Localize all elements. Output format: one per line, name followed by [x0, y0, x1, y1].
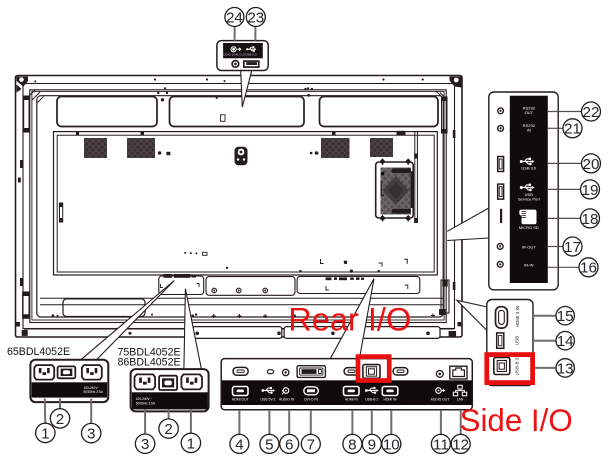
- svg-text:5: 5: [265, 436, 273, 453]
- svg-text:10: 10: [383, 436, 400, 453]
- svg-text:18: 18: [582, 211, 599, 228]
- svg-text:2: 2: [164, 421, 172, 438]
- svg-text:IN: IN: [527, 128, 531, 133]
- svg-text:HDMI IN: HDMI IN: [345, 397, 359, 401]
- svg-text:IR-IN: IR-IN: [524, 262, 533, 267]
- svg-text:4: 4: [235, 436, 243, 453]
- svg-text:AUDIO OUT: AUDIO OUT: [431, 397, 450, 401]
- svg-text:24: 24: [226, 9, 243, 26]
- svg-text:17: 17: [564, 239, 581, 256]
- svg-text:1: 1: [41, 425, 49, 442]
- svg-text:6: 6: [285, 436, 293, 453]
- svg-text:23: 23: [247, 9, 264, 26]
- svg-text:19: 19: [582, 182, 599, 199]
- svg-text:AUDIO IN: AUDIO IN: [279, 397, 295, 401]
- svg-text:USB-B 3: USB-B 3: [514, 357, 519, 375]
- svg-text:11: 11: [433, 436, 449, 453]
- svg-text:86BDL4052E: 86BDL4052E: [118, 356, 181, 368]
- svg-text:50/60Hz 2.5A: 50/60Hz 2.5A: [136, 401, 156, 405]
- svg-text:USB-B 2: USB-B 2: [365, 397, 378, 401]
- svg-text:2: 2: [56, 411, 64, 428]
- svg-text:9: 9: [368, 436, 376, 453]
- svg-text:USB 3.0: USB 3.0: [521, 166, 537, 171]
- svg-text:3: 3: [87, 426, 95, 443]
- svg-text:HDMI IN: HDMI IN: [384, 397, 398, 401]
- svg-text:1: 1: [187, 435, 195, 452]
- svg-text:MICRO SD: MICRO SD: [519, 225, 539, 230]
- svg-text:HDMI OUT: HDMI OUT: [232, 397, 249, 401]
- svg-text:USB: USB: [514, 336, 519, 345]
- svg-text:22: 22: [583, 104, 600, 121]
- svg-text:50/60Hz 2.5A: 50/60Hz 2.5A: [84, 390, 104, 394]
- svg-text:AUDIO LINE OUT: AUDIO LINE OUT: [221, 52, 245, 56]
- svg-text:LAN: LAN: [457, 398, 464, 402]
- svg-text:8: 8: [348, 436, 356, 453]
- svg-text:Side I/O: Side I/O: [460, 403, 573, 438]
- svg-text:HDMI 3 IN: HDMI 3 IN: [515, 306, 520, 327]
- svg-text:20: 20: [583, 156, 600, 173]
- svg-text:USB 2.0: USB 2.0: [245, 52, 257, 56]
- svg-text:16: 16: [580, 260, 597, 277]
- svg-text:12: 12: [452, 436, 469, 453]
- svg-text:3: 3: [141, 436, 149, 453]
- svg-text:15: 15: [557, 308, 574, 325]
- svg-text:DVI-D IN: DVI-D IN: [304, 397, 318, 401]
- svg-text:13: 13: [557, 360, 574, 377]
- svg-text:65BDL4052E: 65BDL4052E: [7, 346, 70, 358]
- svg-text:Rear I/O: Rear I/O: [288, 301, 411, 338]
- svg-text:Service Port: Service Port: [518, 197, 541, 202]
- svg-text:100-240V~: 100-240V~: [84, 386, 100, 390]
- svg-text:IR-OUT: IR-OUT: [522, 245, 536, 250]
- svg-text:14: 14: [557, 333, 574, 350]
- svg-text:100-240V ~: 100-240V ~: [136, 397, 153, 401]
- svg-text:OUT: OUT: [525, 110, 534, 115]
- svg-text:21: 21: [564, 121, 581, 138]
- svg-text:USB 5V-2: USB 5V-2: [261, 397, 276, 401]
- svg-text:7: 7: [307, 436, 315, 453]
